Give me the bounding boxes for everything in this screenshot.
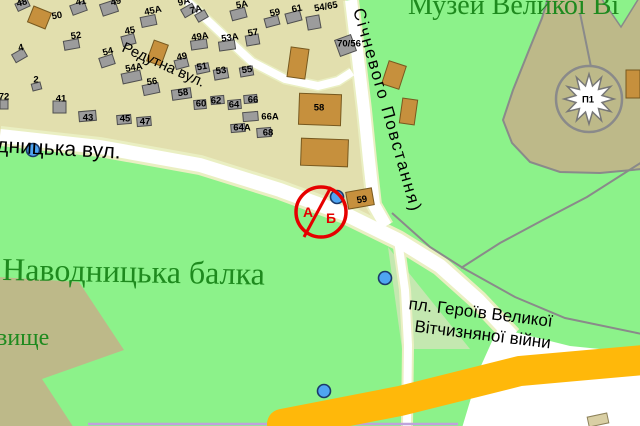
building-label: П1 <box>582 95 595 106</box>
marker-letter-b: Б <box>326 210 336 226</box>
building <box>626 70 640 98</box>
building-label: 68 <box>263 128 274 139</box>
building-label: 58 <box>177 87 189 99</box>
building-label: 43 <box>83 113 94 124</box>
building-label: 62 <box>211 96 222 107</box>
building-label: 70/56 <box>337 39 361 50</box>
building <box>287 47 309 79</box>
building-label: 2 <box>33 75 38 86</box>
building-label: 66А <box>261 112 279 123</box>
building-label: 52 <box>70 30 82 42</box>
map-canvas: 48414945А9А7А5А596154/6550524455454А49А5… <box>0 0 640 426</box>
building-label: 58 <box>314 103 325 114</box>
building-label: 57 <box>247 27 259 40</box>
building-label: 59 <box>269 7 282 20</box>
building-label: 64 <box>229 100 240 111</box>
building <box>399 98 417 125</box>
building-label: 60 <box>196 99 207 110</box>
building <box>301 138 349 167</box>
poi-marker[interactable] <box>318 385 331 398</box>
marker-letter-a: А <box>303 204 313 220</box>
building-label: 50 <box>51 10 63 23</box>
building-label: . <box>335 0 338 11</box>
map-viewport: 48414945А9А7А5А596154/6550524455454А49А5… <box>0 0 640 426</box>
museum-label: Музей Великої Ві <box>408 0 619 21</box>
building-label: 53 <box>215 65 227 77</box>
building-label: 66 <box>248 95 259 106</box>
building-label: 47 <box>140 117 151 128</box>
building <box>243 111 259 121</box>
building-label: 41 <box>56 94 67 105</box>
poi-marker[interactable] <box>379 272 392 285</box>
building-label: 56 <box>146 76 158 88</box>
building-label: 64А <box>233 123 251 134</box>
building-label: 72 <box>0 92 9 103</box>
cemetery-label: вище <box>0 325 49 351</box>
building-label: 59 <box>356 194 368 207</box>
ravine-label: Наводницька балка <box>2 251 265 292</box>
building <box>306 15 321 30</box>
building-label: 45 <box>120 114 131 125</box>
